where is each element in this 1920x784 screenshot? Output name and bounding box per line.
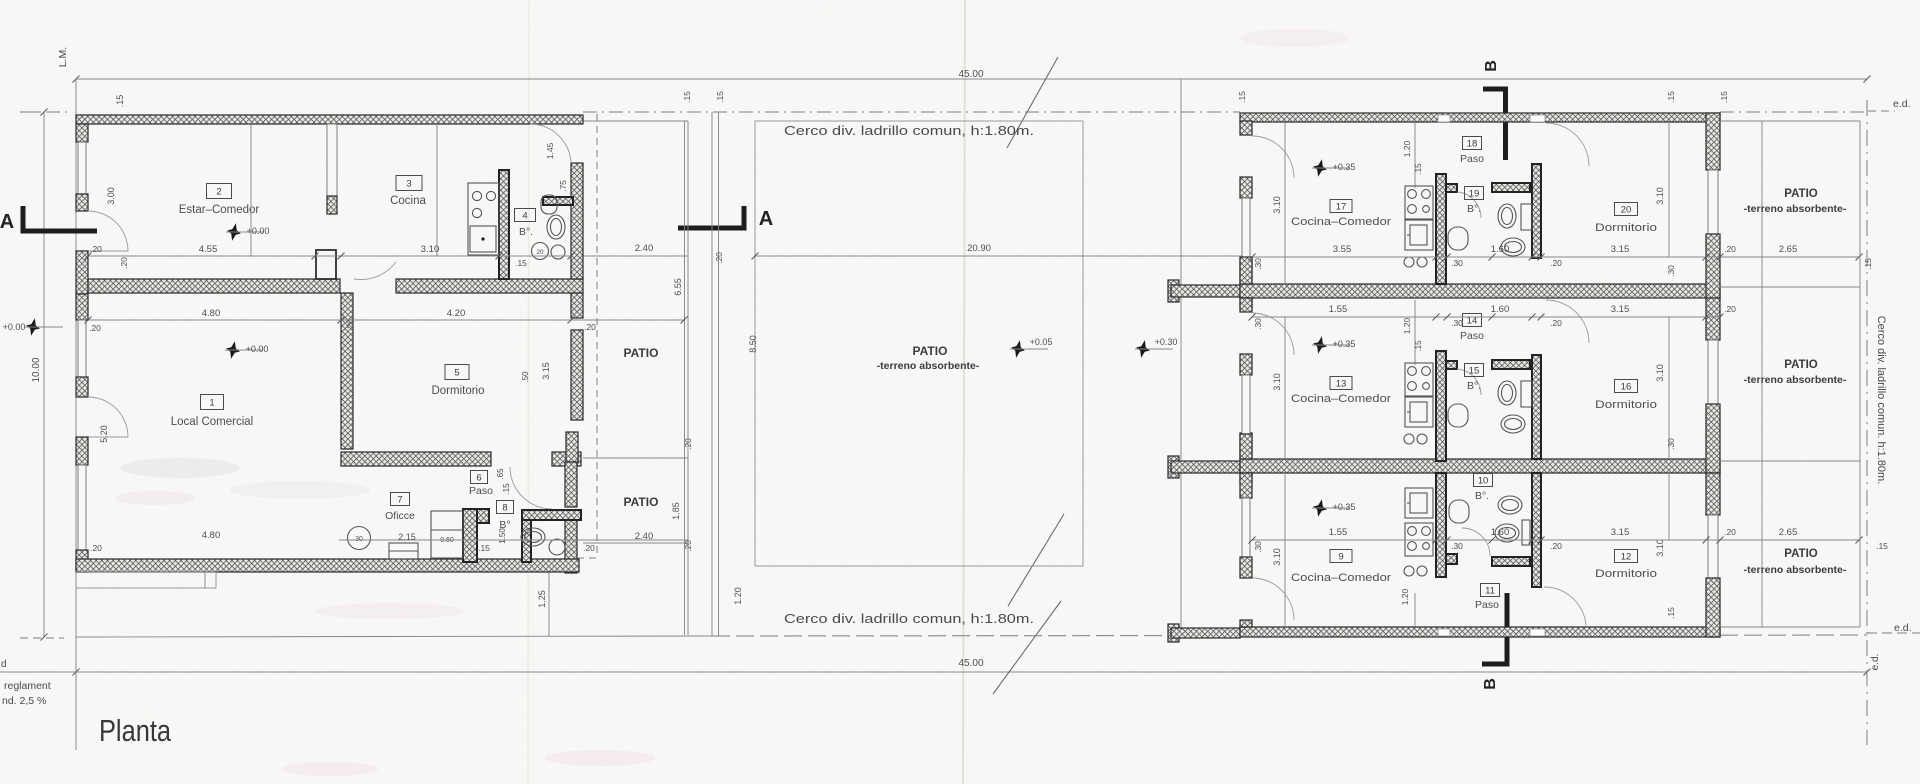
svg-text:.15: .15 — [502, 483, 511, 495]
svg-text:3.10: 3.10 — [1655, 187, 1665, 205]
svg-text:.20: .20 — [1550, 541, 1562, 551]
svg-text:10.00: 10.00 — [31, 357, 42, 382]
svg-text:1.20: 1.20 — [1400, 588, 1410, 605]
svg-text:.30: .30 — [1253, 258, 1263, 270]
svg-text:1.55: 1.55 — [1329, 304, 1348, 315]
svg-text:Paso: Paso — [1475, 599, 1499, 611]
svg-text:+0.35: +0.35 — [1333, 339, 1356, 349]
svg-text:3: 3 — [406, 178, 411, 189]
svg-text:3.15: 3.15 — [1611, 244, 1630, 255]
svg-text:17: 17 — [1336, 201, 1347, 212]
svg-text:.30: .30 — [1666, 265, 1676, 277]
svg-text:A: A — [759, 208, 773, 230]
svg-text:.20: .20 — [584, 322, 596, 332]
svg-text:Dormitorio: Dormitorio — [1595, 399, 1657, 411]
svg-text:4.80: 4.80 — [202, 530, 221, 541]
svg-text:PATIO: PATIO — [1784, 188, 1817, 200]
svg-text:-terreno absorbente-: -terreno absorbente- — [1744, 564, 1847, 576]
svg-text:.15: .15 — [1666, 607, 1676, 619]
svg-text:Paso: Paso — [469, 485, 493, 497]
svg-text:Paso: Paso — [1460, 330, 1484, 342]
svg-text:nd. 2,5 %: nd. 2,5 % — [2, 695, 46, 707]
svg-text:.65: .65 — [496, 468, 505, 480]
svg-text:.20: .20 — [89, 323, 101, 333]
svg-text:1.20: 1.20 — [1402, 317, 1412, 334]
svg-text:e.d.: e.d. — [1893, 98, 1911, 110]
svg-text:A: A — [0, 211, 14, 233]
svg-text:Cocina–Comedor: Cocina–Comedor — [1291, 216, 1391, 228]
svg-text:18: 18 — [1467, 138, 1478, 149]
svg-text:1.60: 1.60 — [1491, 304, 1510, 315]
svg-text:B: B — [1483, 60, 1500, 72]
svg-text:3.15: 3.15 — [541, 362, 551, 380]
svg-text:.20: .20 — [1550, 318, 1562, 328]
svg-text:+0.05: +0.05 — [1030, 337, 1053, 347]
svg-text:.30: .30 — [1253, 318, 1263, 330]
svg-text:Cocina–Comedor: Cocina–Comedor — [1291, 572, 1391, 584]
svg-text:.20: .20 — [714, 252, 724, 264]
svg-text:e.d.: e.d. — [1894, 622, 1912, 634]
svg-text:5.20: 5.20 — [99, 425, 109, 443]
svg-text:Cerco div. ladrillo comun.: Cerco div. ladrillo comun. h:1.80m. — [1875, 316, 1887, 485]
svg-text:13: 13 — [1336, 378, 1347, 389]
svg-text:4.80: 4.80 — [202, 308, 221, 319]
svg-text:16: 16 — [1621, 381, 1632, 392]
svg-text:4: 4 — [522, 210, 527, 221]
svg-text:B°.: B°. — [519, 226, 533, 238]
svg-text:1.45: 1.45 — [545, 142, 555, 159]
svg-text:.20: .20 — [345, 319, 355, 331]
svg-text:e.d.: e.d. — [1870, 654, 1881, 671]
svg-text:.15: .15 — [1414, 340, 1423, 352]
svg-text:1.60: 1.60 — [1491, 527, 1510, 538]
svg-text:3.10: 3.10 — [1272, 196, 1282, 214]
svg-text:+0.00: +0.00 — [3, 322, 26, 332]
svg-text:.20: .20 — [683, 438, 693, 450]
svg-text:12: 12 — [1621, 551, 1632, 562]
svg-text:Dormitorio: Dormitorio — [431, 385, 484, 397]
svg-text:1: 1 — [209, 397, 214, 408]
svg-text:1.20: 1.20 — [1402, 140, 1412, 157]
svg-text:30: 30 — [355, 536, 363, 543]
svg-text:1.55: 1.55 — [1329, 527, 1348, 538]
svg-text:1.50: 1.50 — [498, 528, 507, 544]
svg-text:Oficce: Oficce — [385, 510, 415, 522]
svg-text:15: 15 — [1469, 365, 1480, 376]
svg-text:10: 10 — [1478, 475, 1489, 486]
svg-text:PATIO: PATIO — [1784, 548, 1817, 560]
svg-text:.15: .15 — [1876, 541, 1888, 551]
svg-text:6: 6 — [476, 472, 481, 483]
svg-text:3.55: 3.55 — [1333, 244, 1352, 255]
svg-text:1.20: 1.20 — [733, 587, 743, 605]
svg-text:3.10: 3.10 — [1272, 373, 1282, 391]
svg-text:8: 8 — [502, 502, 507, 513]
svg-text:-terreno absorbente-: -terreno absorbente- — [1744, 374, 1847, 386]
svg-text:1.25: 1.25 — [537, 590, 547, 608]
svg-text:.15: .15 — [1414, 163, 1423, 175]
svg-text:.20: .20 — [1724, 304, 1736, 314]
svg-text:PATIO: PATIO — [624, 495, 659, 509]
svg-text:.50: .50 — [521, 371, 530, 383]
svg-text:.15: .15 — [1863, 258, 1873, 270]
svg-text:PATIO: PATIO — [1784, 359, 1817, 371]
svg-text:3.10: 3.10 — [1655, 364, 1665, 382]
svg-text:4.55: 4.55 — [199, 244, 218, 255]
svg-text:.15: .15 — [1719, 91, 1729, 103]
svg-text:2.65: 2.65 — [1779, 527, 1798, 538]
svg-text:.30: .30 — [1666, 438, 1676, 450]
svg-text:Local Comercial: Local Comercial — [171, 416, 253, 428]
svg-text:.20: .20 — [90, 244, 102, 254]
svg-text:.20: .20 — [583, 543, 595, 553]
svg-text:.30: .30 — [1451, 541, 1463, 551]
svg-text:2.15: 2.15 — [398, 532, 416, 542]
svg-text:3.00: 3.00 — [106, 187, 116, 205]
svg-text:11: 11 — [1485, 585, 1495, 596]
svg-text:+0.30: +0.30 — [1155, 337, 1178, 347]
svg-text:-terreno absorbente-: -terreno absorbente- — [1744, 203, 1847, 215]
svg-text:.20: .20 — [90, 543, 102, 553]
svg-text:.20: .20 — [1724, 527, 1736, 537]
svg-text:3.15: 3.15 — [1611, 304, 1630, 315]
svg-text:4.20: 4.20 — [447, 308, 466, 319]
svg-text:3.10: 3.10 — [421, 244, 440, 255]
svg-text:Planta: Planta — [99, 713, 172, 748]
svg-text:1.85: 1.85 — [671, 502, 681, 520]
svg-text:d: d — [1, 659, 7, 670]
svg-text:.15: .15 — [1666, 91, 1676, 103]
svg-text:45.00: 45.00 — [958, 69, 983, 80]
svg-text:+0.00: +0.00 — [247, 226, 270, 236]
svg-text:Cerco div. ladrillo comun, h:1: Cerco div. ladrillo comun, h:1.80m. — [784, 611, 1034, 626]
svg-text:45.00: 45.00 — [958, 658, 983, 669]
svg-text:2.40: 2.40 — [635, 243, 654, 254]
svg-text:8.50: 8.50 — [748, 335, 758, 353]
svg-text:6.55: 6.55 — [673, 278, 683, 296]
svg-text:.15: .15 — [515, 258, 527, 268]
svg-text:.15: .15 — [715, 91, 725, 103]
svg-text:.20: .20 — [683, 540, 693, 552]
svg-text:20: 20 — [536, 249, 544, 256]
svg-text:20.90: 20.90 — [967, 243, 991, 254]
svg-text:.20: .20 — [1550, 258, 1562, 268]
svg-text:19: 19 — [1469, 188, 1480, 199]
svg-text:+0.35: +0.35 — [1333, 502, 1356, 512]
svg-text:PATIO: PATIO — [913, 344, 948, 358]
svg-text:3.15: 3.15 — [1611, 527, 1630, 538]
svg-text:B: B — [1482, 678, 1499, 690]
svg-text:reglament: reglament — [4, 680, 51, 692]
svg-text:.20: .20 — [1724, 244, 1736, 254]
svg-text:20: 20 — [1621, 204, 1632, 215]
svg-text:.30: .30 — [1253, 541, 1263, 553]
svg-text:+0.00: +0.00 — [246, 344, 269, 354]
svg-text:Paso: Paso — [1460, 153, 1484, 165]
svg-text:+0.35: +0.35 — [1333, 162, 1356, 172]
svg-text:.15: .15 — [478, 543, 490, 553]
svg-text:.75: .75 — [558, 180, 568, 192]
svg-text:0.60: 0.60 — [440, 537, 454, 544]
svg-text:2: 2 — [216, 186, 221, 197]
svg-text:Cocina–Comedor: Cocina–Comedor — [1291, 393, 1391, 405]
svg-text:Cocina: Cocina — [390, 195, 426, 207]
svg-text:B°.: B°. — [1467, 380, 1481, 392]
svg-text:1.60: 1.60 — [1491, 244, 1510, 255]
svg-text:B°.: B°. — [1467, 203, 1481, 215]
svg-text:Cerco div. ladrillo comun, h:1: Cerco div. ladrillo comun, h:1.80m. — [784, 123, 1034, 138]
svg-text:7: 7 — [397, 494, 402, 505]
svg-text:Dormitorio: Dormitorio — [1595, 568, 1657, 580]
svg-text:.20: .20 — [119, 257, 129, 269]
svg-text:.15: .15 — [115, 95, 125, 108]
svg-text:2.65: 2.65 — [1779, 244, 1798, 255]
svg-text:.15: .15 — [682, 91, 692, 103]
svg-text:PATIO: PATIO — [624, 346, 659, 360]
svg-text:Dormitorio: Dormitorio — [1595, 222, 1657, 234]
svg-text:B°.: B°. — [1475, 490, 1489, 502]
svg-text:.30: .30 — [1451, 258, 1463, 268]
svg-text:3.10: 3.10 — [1655, 539, 1665, 557]
svg-text:-terreno absorbente-: -terreno absorbente- — [877, 360, 980, 372]
svg-text:L.M.: L.M. — [57, 47, 69, 67]
svg-text:9: 9 — [1338, 551, 1343, 562]
svg-text:3.10: 3.10 — [1272, 548, 1282, 566]
svg-text:.15: .15 — [1237, 91, 1247, 103]
svg-text:Estar–Comedor: Estar–Comedor — [179, 204, 260, 216]
svg-text:5: 5 — [454, 367, 459, 378]
svg-text:.30: .30 — [1451, 318, 1463, 328]
